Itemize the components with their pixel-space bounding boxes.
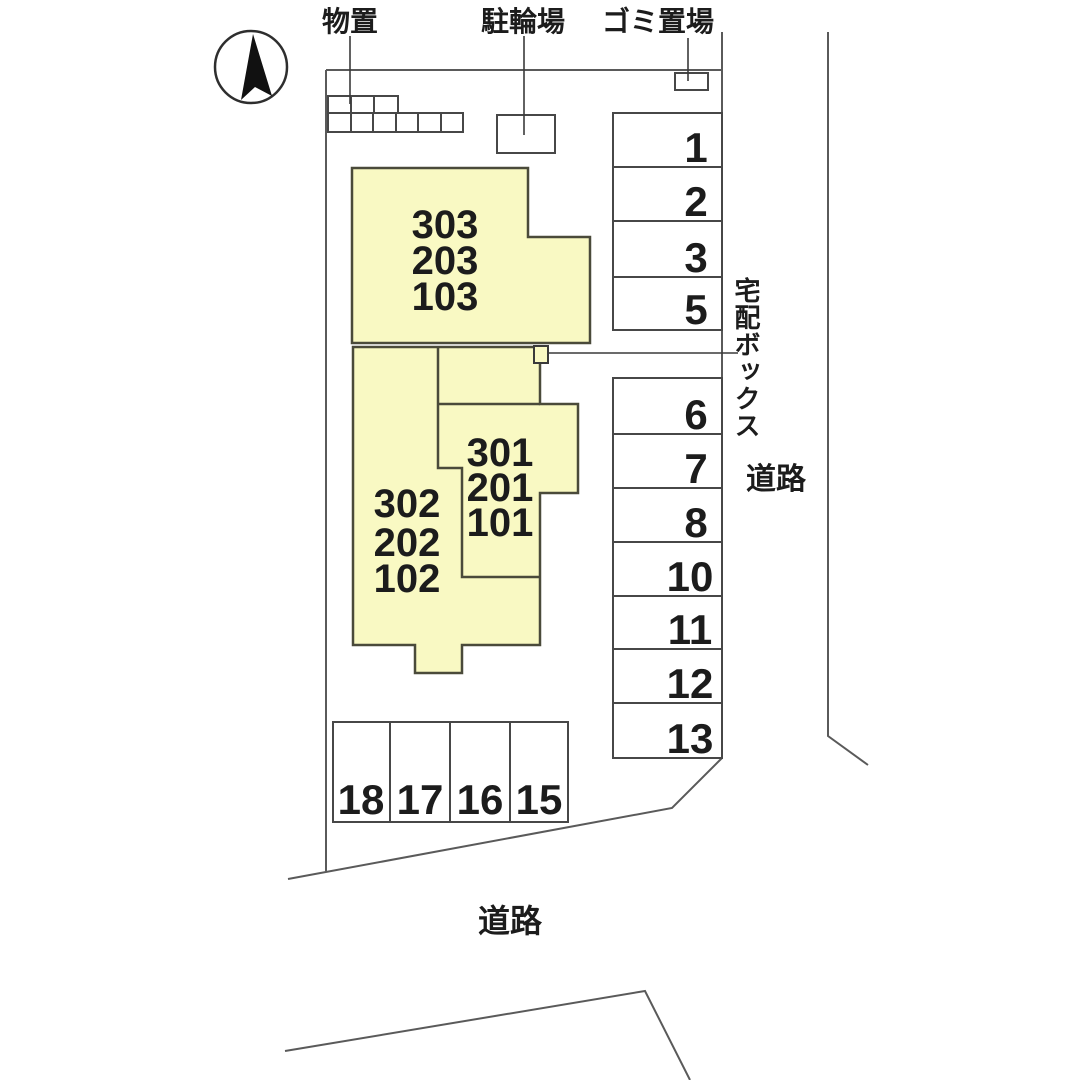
storage-label: 物置 <box>322 6 378 37</box>
stall-number: 5 <box>684 286 707 333</box>
garbage-area-label: ゴミ置場 <box>602 5 714 37</box>
stall-number: 13 <box>667 715 714 762</box>
building-b-left-unit: 302 <box>374 482 441 526</box>
stall-number: 11 <box>668 606 712 653</box>
road-edge-bottom <box>285 991 690 1080</box>
stall-number: 15 <box>516 776 563 823</box>
building-b-right-unit: 101 <box>467 501 534 545</box>
stall-number: 12 <box>667 660 714 707</box>
site-plan-drawing: 物置 駐輪場 ゴミ置場 道路 道路 303 203 103 301 201 10… <box>0 0 1080 1080</box>
road-label-bottom: 道路 <box>478 903 543 939</box>
building-b-left-unit: 102 <box>374 557 441 601</box>
delivery-box <box>534 346 548 363</box>
road-edge-right <box>828 32 868 765</box>
stall-number: 18 <box>338 776 385 823</box>
road-label-right: 道路 <box>746 463 807 496</box>
stall-number: 16 <box>457 776 504 823</box>
stall-number: 1 <box>684 124 707 171</box>
stall-number: 8 <box>684 499 707 546</box>
stall-number: 17 <box>397 776 444 823</box>
garbage-area-box <box>675 73 708 90</box>
stall-number: 3 <box>684 234 707 281</box>
north-arrow-icon <box>215 31 287 103</box>
stall-number: 2 <box>684 178 707 225</box>
building-a-unit: 103 <box>412 275 479 319</box>
bicycle-parking-label: 駐輪場 <box>481 5 565 37</box>
stall-number: 7 <box>684 445 707 492</box>
storage-shed <box>328 96 463 132</box>
stall-number: 6 <box>684 391 707 438</box>
bicycle-parking-box <box>497 115 555 153</box>
site-plan: 物置 駐輪場 ゴミ置場 道路 道路 303 203 103 301 201 10… <box>0 0 1080 1080</box>
stall-number: 10 <box>667 553 714 600</box>
storage-row-top <box>328 96 398 113</box>
delivery-box-label: 宅配ボックス <box>733 277 759 457</box>
